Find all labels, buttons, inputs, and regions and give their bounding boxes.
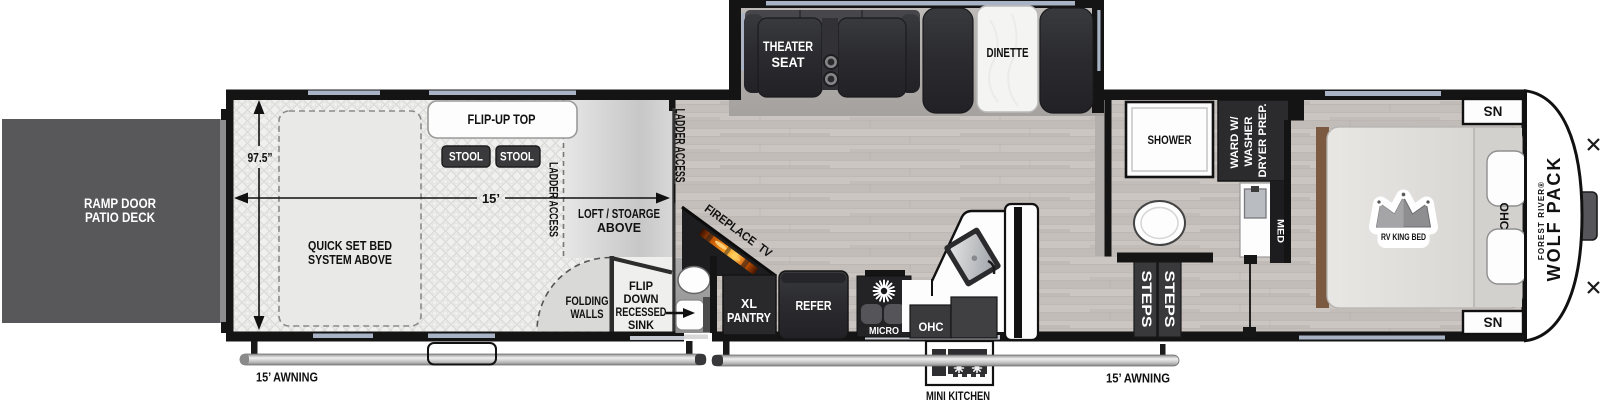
svg-text:LOFT / STOARGE: LOFT / STOARGE <box>578 206 660 221</box>
svg-text:LADDER ACCESS: LADDER ACCESS <box>547 162 561 237</box>
svg-text:STOOL: STOOL <box>500 150 534 164</box>
svg-text:15’: 15’ <box>482 191 500 206</box>
svg-text:MINI KITCHEN: MINI KITCHEN <box>926 389 990 402</box>
svg-text:NS: NS <box>1484 315 1503 330</box>
svg-text:FLIP-UP TOP: FLIP-UP TOP <box>468 111 536 127</box>
svg-text:97.5”: 97.5” <box>248 151 273 165</box>
svg-text:XL: XL <box>741 297 757 311</box>
svg-text:OHC: OHC <box>1497 203 1511 230</box>
svg-text:STEPS: STEPS <box>1139 271 1154 328</box>
svg-text:RV KING BED: RV KING BED <box>1381 232 1426 242</box>
svg-text:ABOVE: ABOVE <box>597 220 641 235</box>
svg-text:15’ AWNING: 15’ AWNING <box>1106 372 1170 386</box>
svg-text:SHOWER: SHOWER <box>1148 133 1192 147</box>
svg-text:SINK: SINK <box>628 320 655 332</box>
svg-text:RAMP DOOR: RAMP DOOR <box>84 196 156 211</box>
svg-text:STOOL: STOOL <box>449 150 483 164</box>
svg-text:DOWN: DOWN <box>624 294 659 306</box>
svg-text:DRYER PREP.: DRYER PREP. <box>1257 104 1269 178</box>
svg-text:WASHER: WASHER <box>1243 116 1255 166</box>
svg-text:WOLF PACK: WOLF PACK <box>1544 156 1564 282</box>
svg-text:NS: NS <box>1484 104 1503 119</box>
svg-text:WARD W/: WARD W/ <box>1229 117 1241 169</box>
svg-text:PATIO DECK: PATIO DECK <box>85 210 155 225</box>
svg-text:LADDER ACCESS: LADDER ACCESS <box>673 109 688 183</box>
svg-text:MICRO: MICRO <box>869 325 899 337</box>
svg-text:STEPS: STEPS <box>1162 271 1177 328</box>
svg-text:SYSTEM ABOVE: SYSTEM ABOVE <box>308 252 392 267</box>
svg-text:FOLDING: FOLDING <box>566 296 609 308</box>
svg-text:THEATER: THEATER <box>763 39 813 54</box>
svg-text:WALLS: WALLS <box>571 309 604 321</box>
svg-text:REFER: REFER <box>796 298 832 313</box>
svg-text:15’ AWNING: 15’ AWNING <box>256 371 318 385</box>
svg-text:OHC: OHC <box>919 320 944 334</box>
svg-text:FLIP: FLIP <box>629 281 653 293</box>
svg-text:DINETTE: DINETTE <box>987 45 1029 60</box>
svg-text:SEAT: SEAT <box>772 55 806 70</box>
svg-text:RECESSED: RECESSED <box>616 307 667 319</box>
svg-text:PANTRY: PANTRY <box>727 311 772 325</box>
svg-text:QUICK SET BED: QUICK SET BED <box>308 238 392 253</box>
svg-text:MED: MED <box>1275 219 1286 243</box>
